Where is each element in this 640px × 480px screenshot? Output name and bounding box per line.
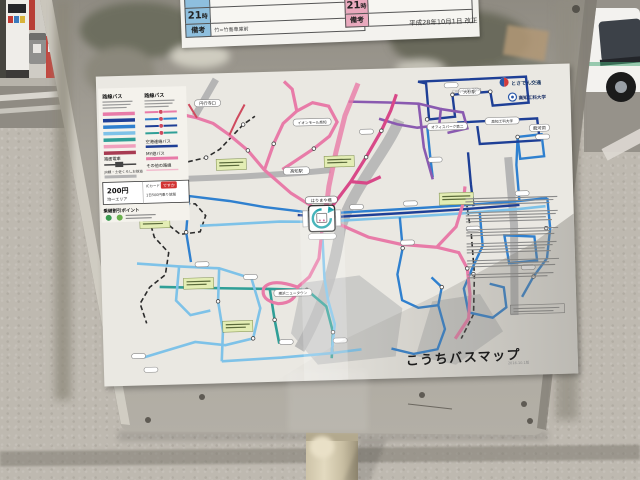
airport-line (146, 146, 178, 147)
hour-header: 21時 (344, 0, 369, 14)
rivet-hole (145, 417, 151, 423)
other-line (146, 169, 178, 170)
rivet-hole (527, 418, 533, 424)
map-edition: 2016.10.1版 (508, 360, 530, 366)
ic-note: 1日500円乗り放題 (146, 191, 177, 197)
bus-map: 高知駅 大杉駅 オフィスパーク第二 高知工科大学 龍河洞 イオンモール高知 横浜… (96, 63, 578, 386)
board-glare (288, 370, 368, 432)
ic-label: ICカード (146, 183, 161, 188)
operator-logo: とさでん交通 (499, 77, 541, 88)
university-name: 高知工科大学 (518, 94, 546, 102)
station-label: オフィスパーク第二 (431, 124, 464, 130)
rivet-hole (199, 394, 205, 400)
ic-card-name: ですか (163, 182, 175, 188)
hour-header: 21時 (184, 7, 211, 24)
photo-scene: 21時 備考 竹=竹島車庫前 21時 備考 (0, 0, 640, 480)
bus-map-sheet: 高知駅 大杉駅 オフィスパーク第二 高知工科大学 龍河洞 イオンモール高知 横浜… (96, 63, 578, 386)
legend-route-bus-right: 路線バス (144, 92, 164, 100)
station-label: 高知工科大学 (491, 118, 513, 124)
logo-mark-red (504, 78, 509, 87)
operator-name: とさでん交通 (511, 79, 541, 87)
remarks-header: 備考 (185, 23, 212, 38)
station-label: イオンモール高知 (298, 119, 327, 125)
fare-area: 均一エリア (107, 195, 127, 202)
remarks-header: 備考 (345, 13, 370, 28)
rivet-hole (419, 392, 425, 398)
rivet-hole (572, 5, 580, 13)
sheet-glare (300, 210, 349, 381)
legend-route-bus-left: 路線バス (102, 93, 122, 101)
revision-date: 平成28年10月1日 改正 (409, 15, 478, 28)
logo-mark-blue (499, 78, 504, 87)
rivet-hole (521, 401, 527, 407)
fare-box: 200円 均一エリア ICカード ですか 1日500円乗り放題 (103, 180, 190, 204)
map-legend: 路線バス 路線バス (98, 86, 190, 222)
timetable-left: 21時 備考 竹=竹島車庫前 (184, 0, 366, 38)
fare-amount: 200円 (107, 187, 129, 196)
